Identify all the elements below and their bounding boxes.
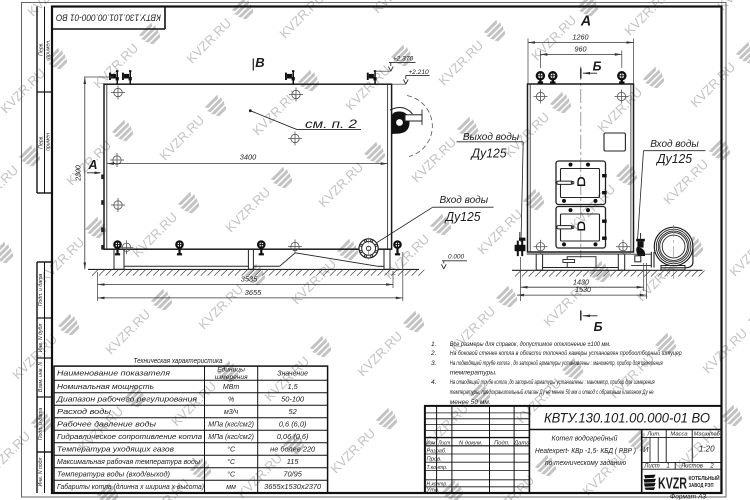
svg-text:На отводящей трубе котла ,до з: На отводящей трубе котла ,до запорной ар… [450,378,655,386]
svg-text:МПа (кгс/см2): МПа (кгс/см2) [208,434,254,441]
svg-text:КВТУ.130.101.00.000-01 ВО: КВТУ.130.101.00.000-01 ВО [544,410,710,426]
svg-text:3400: 3400 [240,153,257,162]
svg-text:Б: Б [593,60,602,74]
svg-text:1.: 1. [431,341,437,348]
svg-text:Наименование показателя: Наименование показателя [57,371,170,378]
svg-text:°С: °С [227,471,236,479]
svg-text:примен: примен [45,133,51,151]
svg-text:Heatexpert- КВр -1,5- КБД ( РВ: Heatexpert- КВр -1,5- КБД ( РВР ) [535,446,636,455]
svg-text:0,6 (6,0): 0,6 (6,0) [279,420,307,429]
svg-text:0,06 (0,6): 0,06 (0,6) [277,432,309,441]
svg-text:%: % [228,397,234,404]
svg-text:Лит.: Лит. [646,431,661,437]
svg-text:Котел водогрейный: Котел водогрейный [552,433,619,442]
svg-text:3.: 3. [431,360,437,367]
svg-text:Масса: Масса [670,431,688,437]
svg-text:960: 960 [575,45,587,54]
svg-text:+2.210: +2.210 [408,69,429,76]
svg-text:А: А [580,14,591,30]
svg-text:ЗАВОД РЭП: ЗАВОД РЭП [689,483,714,489]
svg-text:2.: 2. [430,350,437,357]
svg-text:Расход воды: Расход воды [57,408,112,416]
svg-text:Перв.: Перв. [38,135,44,149]
svg-text:И: И [643,445,649,454]
svg-text:МПа (кгс/см2): МПа (кгс/см2) [208,422,254,429]
svg-text:Изм: Изм [426,440,436,446]
svg-text:Номинальная мощность: Номинальная мощность [57,384,154,391]
svg-text:Диапазон рабочего регулировани: Диапазон рабочего регулирования [56,396,198,404]
svg-text:Инв. N подл: Инв. N подл [38,457,44,486]
svg-text:Температура уходящих газов: Температура уходящих газов [57,446,174,454]
svg-text:Б: Б [594,320,603,334]
svg-text:70/95: 70/95 [283,470,302,479]
svg-text:Взам. инв. N: Взам. инв. N [38,362,44,392]
svg-text:50-100: 50-100 [281,395,305,404]
svg-text:Лист: Лист [437,440,450,446]
svg-text:Подп.: Подп. [494,440,509,446]
svg-text:Н.контр.: Н.контр. [427,481,448,487]
svg-text:На боковой стенке котла в обла: На боковой стенке котла в области топочн… [450,349,682,357]
svg-text:Подп. и дата: Подп. и дата [38,408,44,441]
svg-text:115: 115 [287,457,300,466]
svg-text:+2.370: +2.370 [393,56,414,63]
svg-text:°С: °С [227,458,236,466]
svg-text:2: 2 [709,464,714,470]
svg-text:мм: мм [226,484,236,491]
svg-text:Масштаб: Масштаб [694,431,721,437]
svg-text:0.000: 0.000 [448,254,464,261]
svg-text:см. п. 2: см. п. 2 [305,119,358,131]
svg-text:3655: 3655 [245,288,262,297]
svg-text:4.: 4. [431,379,437,386]
svg-text:1260: 1260 [573,33,589,42]
svg-text:Габариты котла (длинна х ширин: Габариты котла (длинна х ширина х высота… [57,483,204,491]
svg-text:3655х1530х2370: 3655х1530х2370 [264,482,322,491]
svg-text:примен.: примен. [45,39,51,58]
svg-text:Техническая характеристика: Техническая характеристика [134,356,223,365]
svg-text:Подп. и дата: Подп. и дата [38,274,44,307]
svg-text:3535: 3535 [241,275,258,284]
svg-text:2300: 2300 [76,165,83,182]
svg-text:52: 52 [289,407,297,416]
svg-text:МВт: МВт [223,384,240,391]
svg-text:1:20: 1:20 [699,445,715,454]
svg-text:Формат А3: Формат А3 [670,494,706,500]
svg-text:1530: 1530 [575,285,591,294]
svg-text:Утв.: Утв. [426,488,440,494]
svg-text:Ду125: Ду125 [470,146,508,161]
svg-text:В: В [255,55,264,70]
svg-text:Максимальная рабочая температу: Максимальная рабочая температура воды [57,458,201,466]
svg-text:А: А [87,158,97,172]
svg-text:не более 220: не более 220 [270,445,316,454]
svg-text:Рабочее давление воды: Рабочее давление воды [57,421,157,429]
svg-text:1,5: 1,5 [288,382,299,391]
svg-text:м3/ч: м3/ч [224,409,239,416]
svg-text:Гидравлическое сопротивление к: Гидравлическое сопротивление котла [57,433,202,441]
svg-text:Все размеры для справок, допус: Все размеры для справок, допустимое откл… [450,340,611,348]
svg-text:Значение: Значение [277,371,308,378]
svg-text:температуры.: температуры. [450,369,497,376]
svg-text:Вход воды: Вход воды [650,139,699,150]
svg-text:Температура воды (вход/выход): Температура воды (вход/выход) [57,471,170,479]
svg-text:N докум.: N докум. [459,440,482,446]
svg-text:Инв. N дубл: Инв. N дубл [38,324,44,353]
svg-text:Перв.: Перв. [38,42,44,56]
svg-text:температуры, предохранительный: температуры, предохранительный клапан Ду… [450,388,654,396]
svg-text:Дата: Дата [513,440,530,446]
svg-text:1: 1 [666,464,669,470]
svg-text:измерения: измерения [215,374,248,381]
svg-text:Пров.: Пров. [427,457,442,463]
svg-text:КОТЕЛЬНЫЙ: КОТЕЛЬНЫЙ [689,474,720,482]
svg-text:Единицы: Единицы [217,366,245,374]
svg-text:по техническому заданию: по техническому заданию [545,458,626,467]
svg-text:Листов: Листов [680,464,703,470]
svg-text:Лист: Лист [643,464,659,470]
svg-text:°С: °С [227,446,236,454]
svg-text:KVZR: KVZR [658,475,687,492]
svg-text:КВТУ.130.101.00.000-01 ВО: КВТУ.130.101.00.000-01 ВО [56,13,161,23]
svg-text:Ду125: Ду125 [655,151,693,166]
svg-text:На подводящей трубе котла , д: На подводящей трубе котла , до запорной … [450,359,663,367]
svg-text:Т.контр.: Т.контр. [427,465,448,471]
svg-text:Разраб.: Разраб. [427,449,447,455]
svg-text:Ду125: Ду125 [444,209,482,224]
svg-text:Вход воды: Вход воды [440,195,489,206]
